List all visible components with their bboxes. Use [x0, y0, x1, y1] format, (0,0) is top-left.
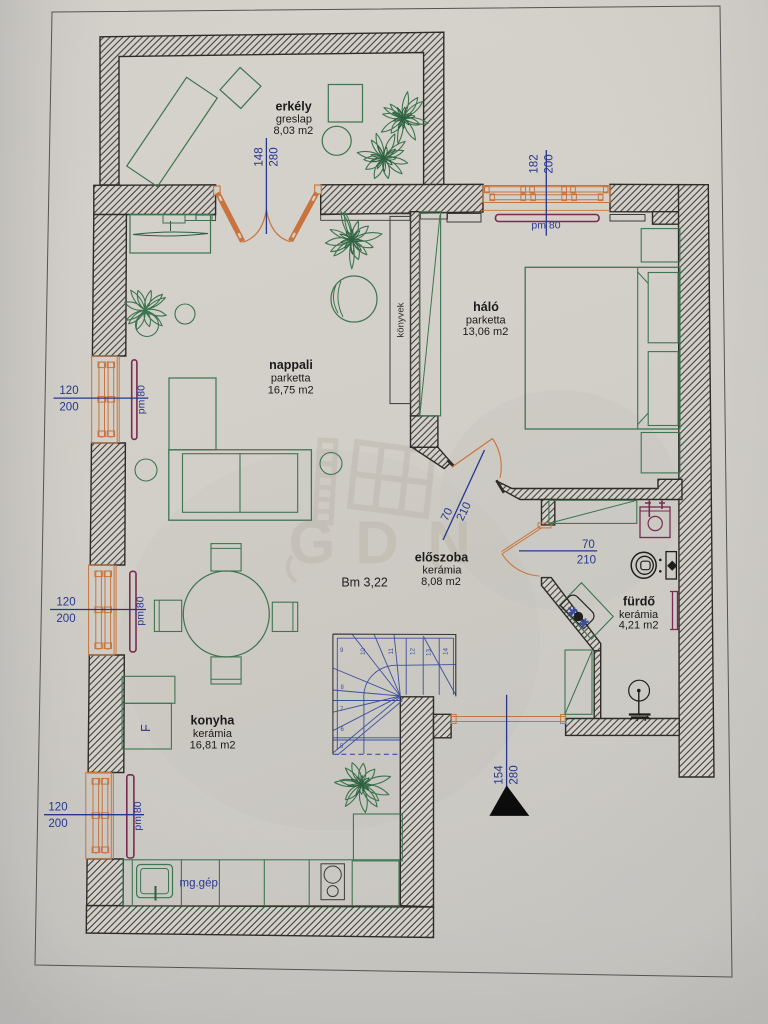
svg-text:4,21 m2: 4,21 m2 — [619, 620, 659, 632]
svg-text:pm 80: pm 80 — [132, 801, 144, 830]
svg-text:kerámia: kerámia — [422, 565, 462, 577]
svg-text:F: F — [139, 724, 153, 732]
svg-text:greslap: greslap — [276, 113, 312, 125]
svg-text:D: D — [355, 509, 398, 576]
svg-text:parketta: parketta — [466, 315, 507, 327]
svg-text:16,81 m2: 16,81 m2 — [190, 740, 236, 752]
svg-text:154: 154 — [494, 765, 506, 785]
svg-text:280: 280 — [268, 147, 280, 166]
svg-text:148: 148 — [253, 147, 265, 166]
svg-text:pm 80: pm 80 — [135, 596, 147, 625]
svg-text:konyha: konyha — [191, 714, 236, 728]
svg-text:182: 182 — [529, 154, 541, 173]
svg-text:120: 120 — [59, 385, 78, 397]
svg-text:200: 200 — [544, 154, 556, 173]
svg-text:nappali: nappali — [269, 358, 313, 372]
svg-text:13,06 m2: 13,06 m2 — [462, 326, 508, 338]
svg-text:10: 10 — [360, 648, 367, 656]
svg-text:200: 200 — [59, 402, 78, 414]
svg-text:280: 280 — [509, 765, 521, 784]
svg-text:kerámia: kerámia — [193, 728, 233, 740]
svg-text:könyvek: könyvek — [396, 302, 407, 337]
svg-text:8,03 m2: 8,03 m2 — [274, 125, 314, 137]
svg-text:210: 210 — [577, 555, 596, 567]
svg-text:120: 120 — [56, 596, 75, 608]
svg-text:11: 11 — [388, 648, 395, 655]
svg-text:12: 12 — [410, 648, 417, 656]
svg-text:120: 120 — [48, 802, 67, 814]
svg-text:háló: háló — [473, 300, 499, 314]
svg-text:Bm 3,22: Bm 3,22 — [341, 576, 388, 590]
svg-text:fürdő: fürdő — [623, 595, 655, 609]
svg-text:200: 200 — [48, 818, 67, 830]
svg-text:erkély: erkély — [276, 100, 312, 114]
svg-text:70: 70 — [582, 539, 595, 551]
svg-text:200: 200 — [56, 613, 75, 625]
svg-text:8,08 m2: 8,08 m2 — [421, 576, 461, 588]
svg-text:13: 13 — [426, 649, 433, 657]
svg-text:előszoba: előszoba — [415, 551, 470, 565]
svg-text:16,75 m2: 16,75 m2 — [268, 385, 314, 397]
svg-text:mg.gép: mg.gép — [180, 878, 218, 890]
svg-text:pm 80: pm 80 — [136, 385, 148, 414]
svg-text:parketta: parketta — [271, 373, 312, 385]
svg-text:14: 14 — [443, 648, 450, 656]
